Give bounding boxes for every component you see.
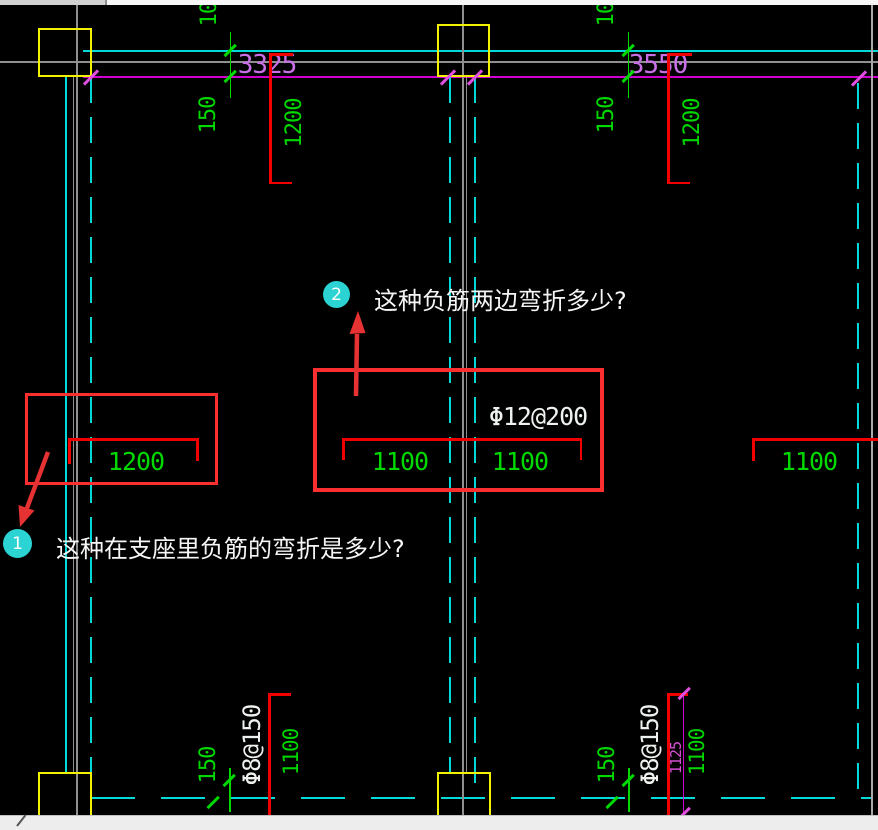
bottom-rebar-spec: Φ8@150 [239, 695, 265, 795]
callout-badge-2: 2 [323, 281, 350, 308]
neg-rebar-3 [752, 438, 878, 441]
rebar-hook [752, 438, 755, 461]
rebar-hook [667, 182, 690, 185]
rebar-hook [667, 53, 692, 56]
offset-dim-100: 100 [199, 0, 221, 38]
bottom-rebar-bar-1 [268, 693, 271, 815]
column-top-mid [437, 24, 490, 77]
cad-drawing-viewport: 3325 3550 100 150 1200 100 150 1200 1200… [0, 0, 878, 830]
rebar-length-dim: 1100 [280, 725, 302, 779]
annotation-box-2 [313, 368, 604, 492]
badge-number: 1 [12, 534, 23, 554]
top-rebar-bar-2 [667, 53, 670, 184]
rebar-length-dim: 1100 [686, 725, 708, 779]
question-label-1: 这种在支座里负筋的弯折是多少? [56, 529, 405, 564]
question-label-2: 这种负筋两边弯折多少? [374, 281, 627, 316]
column-bottom-mid [437, 772, 491, 819]
dim-line [229, 768, 231, 812]
top-scrollbar-track-left[interactable] [0, 0, 105, 5]
rebar-hook [269, 53, 293, 56]
annotation-box-1 [25, 393, 218, 485]
bottom-scrollbar-track[interactable] [0, 815, 878, 830]
bottom-rebar-spec: Φ8@150 [637, 695, 663, 795]
offset-dim-150: 150 [198, 87, 220, 143]
offset-dim-150: 150 [596, 87, 618, 143]
top-rebar-bar-1 [269, 53, 272, 184]
rebar-hook [268, 693, 291, 696]
offset-dim-150: 150 [198, 740, 220, 790]
offset-dim-150: 150 [597, 740, 619, 790]
axis-tick [851, 70, 867, 86]
rebar-length-dim: 1100 [779, 447, 839, 476]
top-scrollbar-track[interactable] [107, 0, 878, 5]
dim-line [628, 768, 630, 812]
offset-dim-100: 100 [596, 0, 618, 38]
rebar-length-dim: 1200 [283, 93, 307, 153]
callout-badge-1: 1 [3, 529, 32, 558]
dim-line [230, 32, 232, 98]
beam-edge-right [871, 5, 873, 815]
rebar-hook [269, 182, 292, 185]
dim-value-1125: 1125 [668, 734, 684, 782]
column-bottom-left [38, 772, 92, 819]
column-top-left [38, 28, 92, 77]
badge-number: 2 [331, 285, 342, 305]
dim-line [628, 32, 630, 98]
rebar-length-dim: 1200 [681, 93, 705, 153]
